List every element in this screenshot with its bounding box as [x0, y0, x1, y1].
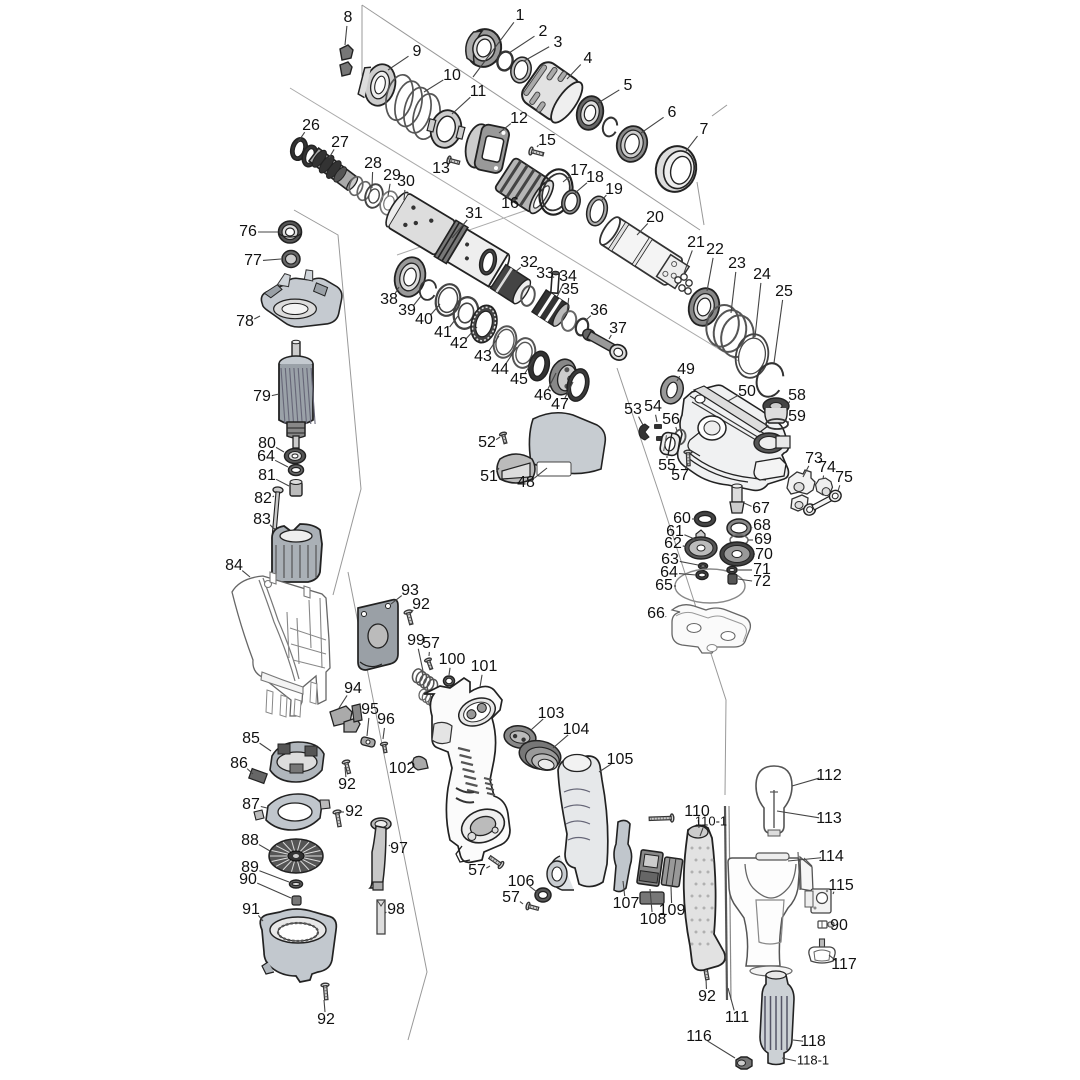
svg-text:109: 109	[659, 902, 686, 919]
svg-text:11: 11	[470, 83, 487, 100]
svg-text:98: 98	[387, 901, 405, 918]
svg-text:50: 50	[738, 383, 756, 400]
svg-text:91: 91	[242, 901, 260, 918]
svg-text:39: 39	[398, 302, 416, 319]
svg-text:28: 28	[364, 155, 382, 172]
svg-text:26: 26	[302, 117, 320, 134]
svg-text:84: 84	[225, 557, 243, 574]
svg-text:38: 38	[380, 291, 398, 308]
svg-text:30: 30	[397, 173, 415, 190]
svg-text:66: 66	[647, 605, 665, 622]
svg-text:57: 57	[422, 635, 440, 652]
svg-text:101: 101	[471, 658, 498, 675]
svg-text:57: 57	[502, 889, 520, 906]
svg-text:117: 117	[831, 956, 857, 973]
svg-text:90: 90	[239, 871, 257, 888]
svg-text:40: 40	[415, 311, 433, 328]
svg-text:21: 21	[687, 234, 705, 251]
svg-text:77: 77	[244, 252, 262, 269]
svg-text:8: 8	[344, 9, 353, 26]
svg-text:18: 18	[586, 169, 604, 186]
svg-text:42: 42	[450, 335, 468, 352]
svg-text:92: 92	[345, 803, 363, 820]
svg-text:97: 97	[390, 840, 408, 857]
svg-text:56: 56	[662, 411, 680, 428]
svg-text:100: 100	[439, 651, 466, 668]
svg-text:85: 85	[242, 730, 260, 747]
svg-text:13: 13	[432, 160, 450, 177]
svg-text:105: 105	[607, 751, 634, 768]
svg-text:94: 94	[344, 680, 362, 697]
svg-text:23: 23	[728, 255, 746, 272]
svg-text:96: 96	[377, 711, 395, 728]
svg-text:59: 59	[788, 408, 806, 425]
svg-text:51: 51	[480, 468, 498, 485]
svg-text:6: 6	[668, 104, 677, 121]
svg-text:92: 92	[698, 988, 716, 1005]
svg-text:107: 107	[613, 895, 640, 912]
svg-text:53: 53	[624, 401, 642, 418]
svg-text:36: 36	[590, 302, 608, 319]
svg-text:118: 118	[800, 1033, 826, 1050]
svg-text:2: 2	[539, 23, 548, 40]
svg-text:46: 46	[534, 387, 552, 404]
svg-text:35: 35	[561, 281, 579, 298]
svg-text:62: 62	[664, 535, 682, 552]
svg-text:104: 104	[563, 721, 590, 738]
svg-text:86: 86	[230, 755, 248, 772]
svg-text:81: 81	[258, 467, 276, 484]
svg-text:116: 116	[686, 1028, 712, 1045]
svg-text:78: 78	[236, 313, 254, 330]
svg-text:106: 106	[508, 873, 535, 890]
svg-text:110-1: 110-1	[695, 813, 727, 828]
svg-text:74: 74	[818, 459, 836, 476]
svg-text:118-1: 118-1	[797, 1052, 829, 1067]
svg-text:93: 93	[401, 582, 419, 599]
svg-text:49: 49	[677, 361, 695, 378]
svg-text:83: 83	[253, 511, 271, 528]
svg-text:115: 115	[828, 877, 854, 894]
svg-text:114: 114	[818, 848, 844, 865]
svg-text:82: 82	[254, 490, 272, 507]
svg-text:20: 20	[646, 209, 664, 226]
svg-text:5: 5	[624, 77, 633, 94]
svg-text:67: 67	[752, 500, 770, 517]
svg-text:15: 15	[538, 132, 556, 149]
svg-text:3: 3	[554, 34, 563, 51]
svg-text:9: 9	[413, 43, 422, 60]
svg-text:4: 4	[584, 50, 593, 67]
svg-text:103: 103	[538, 705, 565, 722]
svg-text:33: 33	[536, 265, 554, 282]
svg-text:102: 102	[389, 760, 416, 777]
svg-text:25: 25	[775, 283, 793, 300]
svg-text:19: 19	[605, 181, 623, 198]
svg-text:76: 76	[239, 223, 257, 240]
svg-text:112: 112	[816, 767, 842, 784]
svg-text:87: 87	[242, 796, 260, 813]
svg-text:54: 54	[644, 398, 662, 415]
svg-text:7: 7	[700, 121, 709, 138]
svg-text:65: 65	[655, 577, 673, 594]
svg-text:1: 1	[516, 7, 525, 24]
svg-text:37: 37	[609, 320, 627, 337]
svg-text:31: 31	[465, 205, 483, 222]
svg-text:57: 57	[468, 862, 486, 879]
svg-text:88: 88	[241, 832, 259, 849]
svg-text:92: 92	[317, 1011, 335, 1028]
svg-text:44: 44	[491, 361, 509, 378]
svg-text:52: 52	[478, 434, 496, 451]
svg-text:58: 58	[788, 387, 806, 404]
svg-text:75: 75	[835, 469, 853, 486]
svg-text:12: 12	[510, 110, 528, 127]
svg-text:43: 43	[474, 348, 492, 365]
svg-text:92: 92	[338, 776, 356, 793]
svg-text:16: 16	[501, 195, 519, 212]
svg-text:64: 64	[257, 448, 275, 465]
svg-text:72: 72	[753, 573, 771, 590]
svg-text:47: 47	[551, 396, 569, 413]
svg-text:111: 111	[725, 1009, 749, 1026]
svg-text:10: 10	[443, 67, 461, 84]
svg-text:79: 79	[253, 388, 271, 405]
svg-text:48: 48	[517, 474, 535, 491]
svg-text:45: 45	[510, 371, 528, 388]
svg-text:57: 57	[671, 467, 689, 484]
svg-text:22: 22	[706, 241, 724, 258]
svg-text:90: 90	[830, 917, 848, 934]
svg-text:27: 27	[331, 134, 349, 151]
svg-text:113: 113	[816, 810, 842, 827]
svg-text:24: 24	[753, 266, 771, 283]
